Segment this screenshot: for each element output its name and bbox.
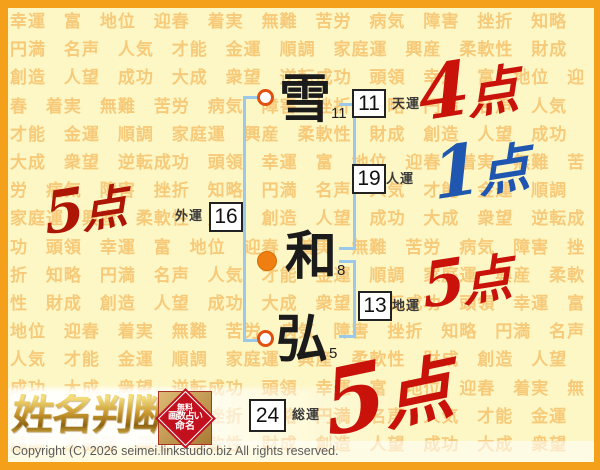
tenun-score-unit: 点 (465, 65, 518, 122)
chiun-value-box: 13 (358, 291, 392, 321)
name-char-1: 雪 (279, 74, 331, 126)
jinun-score-number: 1 (430, 136, 481, 206)
soun-label: 総運 (292, 409, 320, 422)
soun-score: 5 点 (319, 339, 454, 446)
stroke-count-2: 8 (337, 263, 345, 278)
soun-score-unit: 点 (379, 354, 454, 434)
bracket-gaiun (243, 96, 258, 342)
soun-value: 24 (256, 404, 279, 428)
seal-text: 無料 画数占い 命名 (168, 404, 202, 433)
char-marker-mei2 (257, 330, 274, 347)
jinun-label: 人運 (386, 173, 414, 186)
tenun-value: 11 (358, 92, 380, 116)
soun-value-box: 24 (249, 399, 286, 432)
seimei-handan-result-page: 幸運 富 地位 迎春 着実 無難 苦労 病気 障害 挫折 知略 円満 名声 人気… (0, 0, 600, 470)
soun-score-number: 5 (319, 353, 389, 446)
seal-line-3: 命名 (168, 422, 202, 433)
name-char-2: 和 (285, 231, 337, 283)
gaiun-score-unit: 点 (80, 184, 126, 234)
tenun-score-number: 4 (416, 55, 470, 129)
jinun-score: 1 点 (430, 129, 529, 207)
char-marker-sei (257, 89, 274, 106)
gaiun-value-box: 16 (209, 202, 243, 232)
jinun-score-unit: 点 (476, 142, 529, 199)
chiun-score-number: 5 (420, 253, 465, 315)
chiun-score-unit: 点 (460, 254, 511, 309)
tenun-label: 天運 (392, 98, 420, 111)
tenun-value-box: 11 (352, 89, 386, 118)
char-marker-mei1 (257, 251, 277, 271)
chiun-score: 5 点 (420, 245, 511, 314)
jinun-value: 19 (357, 167, 380, 191)
tenun-score: 4 点 (416, 47, 518, 129)
copyright-text: Copyright (C) 2026 seimei.linkstudio.biz… (12, 444, 339, 458)
jinun-value-box: 19 (352, 164, 386, 194)
free-naming-seal-badge: 無料 画数占い 命名 (158, 391, 212, 445)
chiun-value: 13 (363, 294, 386, 318)
gaiun-value: 16 (214, 205, 237, 229)
chiun-label: 地運 (392, 300, 420, 313)
site-logo[interactable]: 姓名判断 (10, 394, 174, 436)
stroke-count-1: 11 (331, 106, 347, 121)
gaiun-score: 5 点 (42, 176, 126, 241)
gaiun-score-number: 5 (42, 182, 83, 240)
gaiun-label: 外運 (175, 210, 203, 223)
